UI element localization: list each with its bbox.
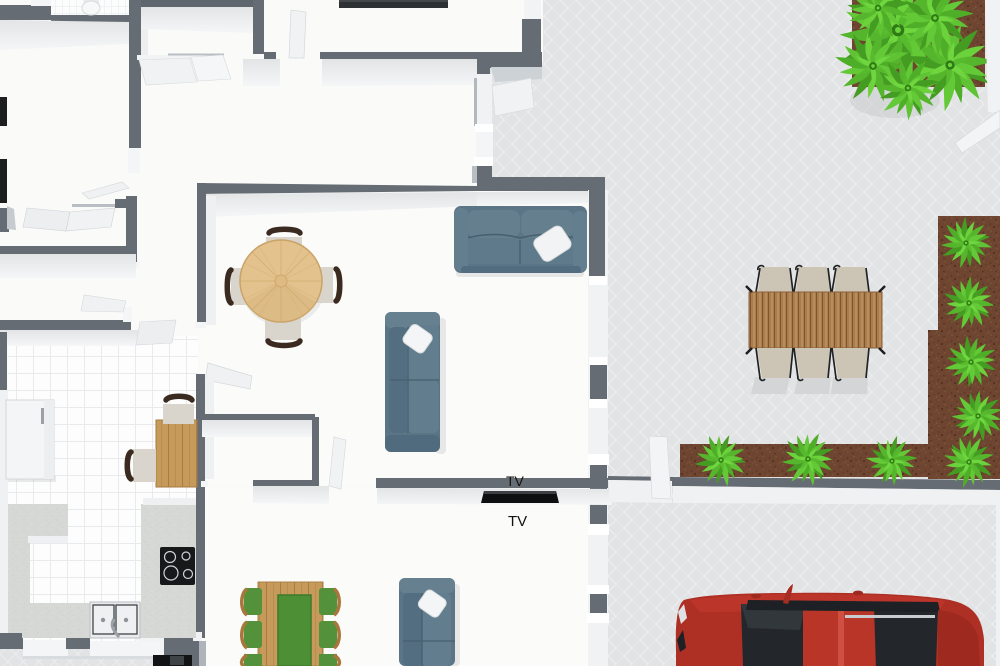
svg-text:TV: TV — [506, 473, 525, 489]
svg-text:TV: TV — [508, 513, 527, 530]
